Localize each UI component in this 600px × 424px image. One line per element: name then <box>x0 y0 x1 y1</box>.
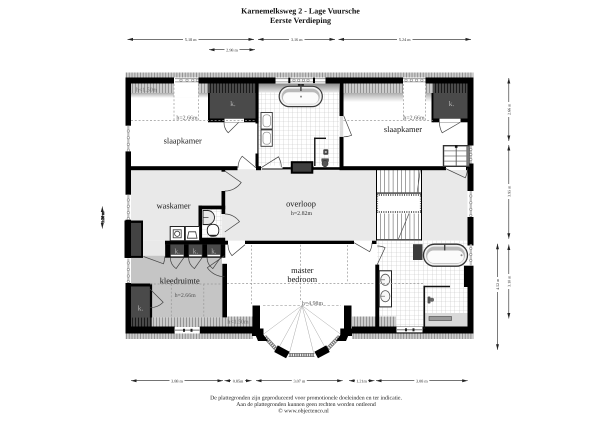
svg-text:k.: k. <box>211 247 217 255</box>
svg-text:bedroom: bedroom <box>287 275 317 284</box>
svg-text:slaapkamer: slaapkamer <box>164 136 202 145</box>
svg-text:h=2.66m: h=2.66m <box>403 115 425 122</box>
svg-text:h<1.50m: h<1.50m <box>136 87 158 94</box>
svg-text:3.10 m: 3.10 m <box>506 275 511 287</box>
svg-text:3.95 m: 3.95 m <box>506 185 511 197</box>
svg-text:Aan de plattegronden kunnen ge: Aan de plattegronden kunnen geen rechten… <box>236 401 376 408</box>
svg-text:3.08 m: 3.08 m <box>416 378 428 383</box>
svg-text:k.: k. <box>138 305 144 313</box>
svg-text:k.: k. <box>175 247 181 255</box>
svg-text:5.24 m: 5.24 m <box>399 37 411 42</box>
svg-text:5.18 m: 5.18 m <box>185 37 197 42</box>
svg-text:kleedruimte: kleedruimte <box>160 277 200 286</box>
svg-text:waskamer: waskamer <box>157 202 191 211</box>
svg-text:4.52 m: 4.52 m <box>495 278 500 290</box>
svg-text:h=2.82m: h=2.82m <box>291 210 313 217</box>
svg-text:Eerste Verdieping: Eerste Verdieping <box>270 16 331 25</box>
svg-text:1.21m: 1.21m <box>356 378 367 383</box>
svg-text:h=2.66m: h=2.66m <box>176 115 198 122</box>
svg-text:0.85m: 0.85m <box>233 378 244 383</box>
svg-text:2.98 m: 2.98 m <box>226 47 238 52</box>
svg-text:k.: k. <box>449 100 455 108</box>
svg-text:overloop: overloop <box>286 200 316 209</box>
svg-text:1.26 m: 1.26 m <box>100 211 105 223</box>
svg-text:k.: k. <box>193 247 199 255</box>
svg-text:k.: k. <box>230 100 236 108</box>
svg-text:Karnemelksweg 2 - Lage Vuursch: Karnemelksweg 2 - Lage Vuursche <box>241 7 360 16</box>
svg-text:2.66 m: 2.66 m <box>506 103 511 115</box>
svg-text:3.16 m: 3.16 m <box>291 37 303 42</box>
svg-text:De plattegronden zijn geproduc: De plattegronden zijn geproduceerd voor … <box>210 395 402 402</box>
svg-text:master: master <box>291 266 314 275</box>
svg-text:h=2.66m: h=2.66m <box>175 292 197 299</box>
svg-text:3.88 m: 3.88 m <box>171 378 183 383</box>
svg-text:slaapkamer: slaapkamer <box>384 125 422 134</box>
svg-text:© www.objectenco.nl: © www.objectenco.nl <box>278 407 329 414</box>
svg-text:3.07 m: 3.07 m <box>293 378 305 383</box>
svg-text:h<1.50m: h<1.50m <box>227 318 249 325</box>
svg-text:h=4.98m: h=4.98m <box>302 300 324 307</box>
